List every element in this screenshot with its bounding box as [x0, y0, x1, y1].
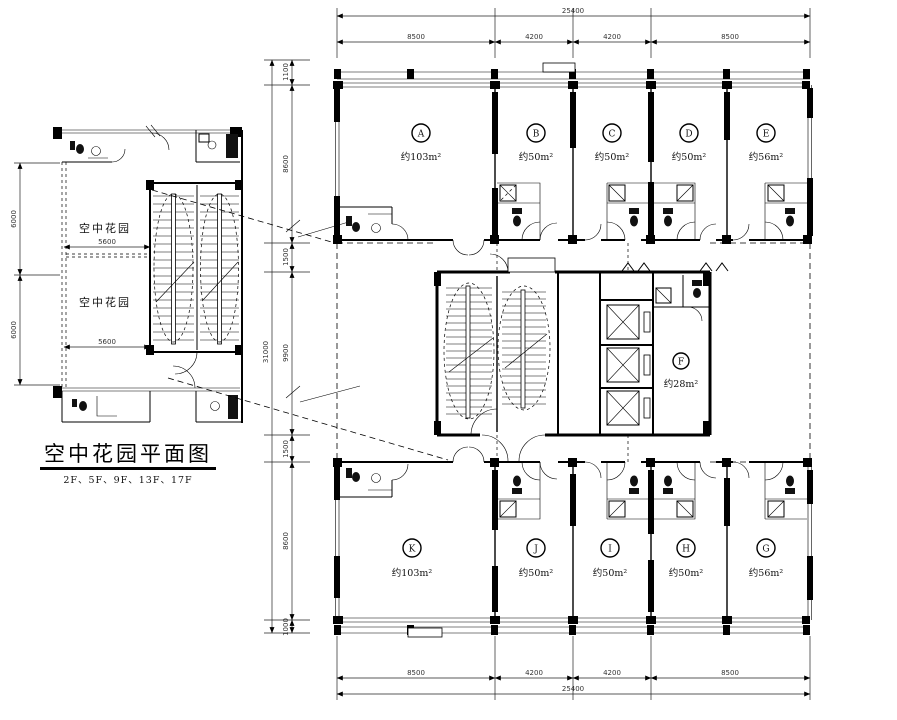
dim-label: 4200 [603, 33, 621, 41]
plan-title: 空中花园平面图 [44, 442, 212, 466]
dim-label: 6000 [10, 210, 18, 228]
inset-bath-bottom-left [62, 391, 150, 422]
room-id-badge: G [762, 545, 769, 555]
stair-1 [444, 276, 497, 432]
dim-label: 1500 [282, 248, 290, 266]
bathroom-k [337, 464, 408, 497]
room-area-label: 约56m² [749, 567, 784, 579]
dim-label: 4200 [525, 669, 543, 677]
room-id-badge: C [609, 130, 616, 140]
floor-plan-drawing: 25400 8500 4200 4200 8500 8500 4200 4200… [0, 0, 897, 720]
dim-label: 8600 [282, 155, 290, 173]
dim-label: 8500 [721, 669, 739, 677]
elevator-bank [600, 272, 653, 435]
room-id-badge: E [763, 130, 770, 140]
inset-stairs [146, 180, 243, 355]
room-B: B 约50m² [519, 124, 554, 163]
plan-floors: 2F、5F、9F、13F、17F [63, 475, 192, 486]
inset-bath-top-right [152, 130, 240, 162]
dim-label-bottom-total: 25400 [562, 685, 584, 693]
dim-label: 5600 [98, 338, 116, 346]
plan-canvas: 25400 8500 4200 4200 8500 8500 4200 4200… [0, 0, 897, 720]
dim-label: 1500 [282, 440, 290, 458]
top-dimension-chain: 25400 8500 4200 4200 8500 [337, 7, 810, 58]
vent-icon [622, 263, 728, 271]
bathroom-g [765, 462, 807, 519]
room-F: F 约28m² [653, 275, 710, 390]
room-area-label: 约28m² [664, 378, 699, 390]
room-area-label: 约103m² [392, 567, 433, 579]
dim-label: 4200 [525, 33, 543, 41]
room-id-badge: J [533, 545, 538, 555]
title-underline [40, 467, 216, 470]
room-A: A 约103m² [401, 124, 442, 163]
core: F 约28m² [434, 254, 728, 461]
dim-label-left-total: 31000 [262, 341, 270, 363]
room-D: D 约50m² [672, 124, 707, 163]
dim-label: 1000 [282, 618, 290, 636]
bathroom-e [765, 183, 807, 240]
dim-label: 8600 [282, 532, 290, 550]
room-area-label: 约50m² [519, 151, 554, 163]
dim-label: 6000 [10, 321, 18, 339]
dim-label: 4200 [603, 669, 621, 677]
grid-centerlines [497, 243, 628, 462]
dim-label: 8500 [407, 33, 425, 41]
dim-label: 9900 [282, 344, 290, 362]
room-id-badge: I [608, 545, 612, 555]
room-area-label: 约50m² [595, 151, 630, 163]
bathroom-j [497, 462, 540, 519]
room-area-label: 约50m² [519, 567, 554, 579]
dim-label: 8500 [407, 669, 425, 677]
title-block: 空中花园平面图 2F、5F、9F、13F、17F [40, 442, 216, 486]
inset-left-dimensions: 6000 6000 [10, 163, 60, 385]
room-E: E 约56m² [749, 124, 784, 163]
void-right [710, 243, 810, 462]
room-id-badge: H [682, 545, 690, 555]
room-C: C 约50m² [595, 124, 630, 163]
south-wing: K 约103m² J 约50m² I 约50m² H 约50m² G 约56m² [333, 447, 813, 637]
dim-label: 8500 [721, 33, 739, 41]
room-G: G 约56m² [749, 539, 784, 579]
dim-label-top-total: 25400 [562, 7, 584, 15]
room-id-badge: D [685, 130, 692, 140]
room-id-badge: F [678, 358, 684, 368]
room-area-label: 约50m² [672, 151, 707, 163]
stair-2 [498, 272, 558, 435]
room-id-badge: K [409, 545, 416, 555]
room-J: J 约50m² [519, 539, 554, 579]
dim-label: 5600 [98, 238, 116, 246]
void-left [337, 243, 437, 462]
room-id-badge: B [533, 130, 540, 140]
bottom-dimension-chain: 8500 4200 4200 8500 25400 [337, 636, 810, 700]
left-dimension-chain: 1100 8600 1500 9900 1500 8600 1000 31000 [262, 60, 360, 636]
room-area-label: 约50m² [593, 567, 628, 579]
room-id-badge: A [417, 130, 425, 140]
north-wing: A 约103m² B 约50m² C 约50m² D 约50m² E 约56m² [333, 63, 813, 255]
room-H: H 约50m² [669, 539, 704, 579]
room-area-label: 约50m² [669, 567, 704, 579]
room-area-label: 约56m² [749, 151, 784, 163]
inset-plan: 空中花园 5600 空中花园 5600 [10, 125, 243, 423]
garden-label-2: 空中花园 [79, 295, 131, 309]
vestibule [508, 258, 555, 272]
room-K: K 约103m² [392, 539, 433, 579]
room-I: I 约50m² [593, 539, 628, 579]
dim-label: 1100 [282, 63, 290, 81]
garden-label-1: 空中花园 [79, 221, 131, 235]
inset-bath-top-left [62, 141, 125, 162]
inset-bath-bottom-right [196, 391, 242, 422]
room-area-label: 约103m² [401, 151, 442, 163]
bathroom-b [497, 183, 540, 240]
bathroom-a [337, 207, 408, 240]
